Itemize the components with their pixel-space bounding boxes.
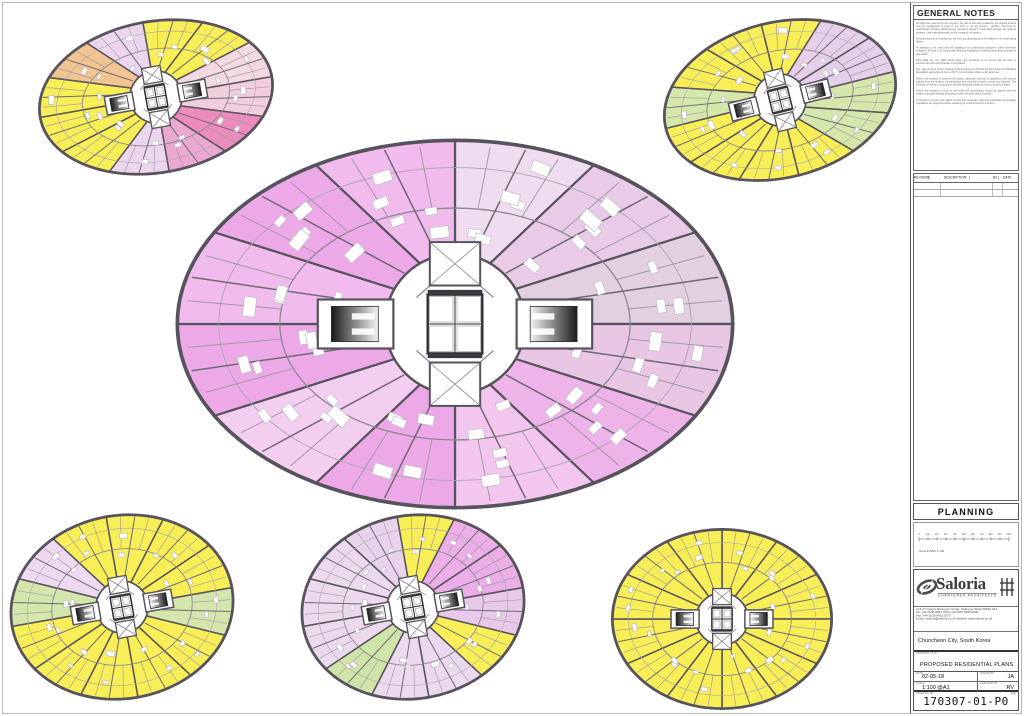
general-note-paragraph: Contractor to ensure that safety checks … <box>916 99 1016 105</box>
planning-stamp: PLANNING <box>913 503 1019 520</box>
svg-text:0: 0 <box>918 532 920 536</box>
checked-by-field: CHECKED BY RV <box>978 682 1018 692</box>
drawing-sheet: GENERAL NOTES All rights are reserved by… <box>0 0 1024 716</box>
drawing-number-label: DRAWING NO <box>916 692 934 695</box>
saloria-swirl-icon <box>916 578 938 596</box>
hanja-seal-icon <box>1000 577 1016 597</box>
general-notes-text: All rights are reserved by the company. … <box>916 22 1016 105</box>
drawing-title-label: DRAWING TITLE <box>916 652 937 655</box>
svg-text:9m: 9m <box>998 532 1003 536</box>
project-location: Chuncheon City, South Korea <box>914 632 1018 652</box>
general-note-paragraph: All rights are reserved by the company. … <box>916 22 1016 34</box>
scale-bar: SCALE BAR 1:100 01m2m3m4m5m6m7m8m9m10m <box>914 523 1019 566</box>
floor-plan-top-right <box>647 0 914 204</box>
title-block-fields: DATE 02-05-18 DRAWN BY JA SCALE 1:100 @A… <box>914 672 1018 692</box>
general-note-paragraph: Where this property is used for the work… <box>916 77 1016 86</box>
svg-text:6m: 6m <box>971 532 976 536</box>
general-note-paragraph: Party Wall etc. Act 1996 would apply any… <box>916 59 1016 65</box>
drawn-by-value: JA <box>1008 674 1014 680</box>
general-note-paragraph: Where this drawing is used for the works… <box>916 90 1016 96</box>
floor-plan-typical-large <box>177 140 733 508</box>
date-value: 02-05-18 <box>922 674 944 680</box>
floor-plan-bottom-centre <box>287 497 540 716</box>
svg-text:7m: 7m <box>980 532 985 536</box>
checked-by-label: CHECKED BY <box>980 682 998 685</box>
scale-value: 1:100 @A1 <box>922 685 950 691</box>
general-notes-box: GENERAL NOTES All rights are reserved by… <box>913 5 1019 171</box>
revision-row-empty <box>914 190 1018 197</box>
drawing-title: PROPOSED RESIDENTIAL PLANS <box>920 662 1013 668</box>
svg-text:3m: 3m <box>944 532 949 536</box>
svg-text:1m: 1m <box>926 532 931 536</box>
by-col: BY <box>993 176 999 180</box>
scale-bar-caption: SCALE BAR 1:100 <box>919 549 945 553</box>
floor-plan-bottom-right <box>612 529 832 709</box>
firm-address: Unit 27 Cygnus Business Centre, Dalmeyer… <box>914 607 1018 632</box>
drawing-number: 170307-01-P0 <box>923 694 1008 709</box>
saloria-wordmark: Saloria <box>936 575 986 592</box>
checked-by-value: RV <box>1006 685 1014 691</box>
general-note-paragraph: The main purpose of this drawing is the … <box>916 68 1016 74</box>
title-block-lower: Saloria CHARTERED ARCHITECTS Unit 27 Cyg… <box>913 569 1019 711</box>
chartered-architects-label: CHARTERED ARCHITECTS <box>938 593 997 597</box>
svg-text:8m: 8m <box>989 532 994 536</box>
floor-plan-bottom-left <box>0 497 248 716</box>
description-col: DESCRIPTION <box>941 176 970 180</box>
general-note-paragraph: All dimensions to be checked on site and… <box>916 37 1016 43</box>
firm-logo-row: Saloria CHARTERED ARCHITECTS <box>914 570 1018 607</box>
revision-col: REVISION <box>914 176 929 180</box>
date-col: DATE <box>1003 176 1011 180</box>
drawn-by-label: DRAWN BY <box>980 672 994 675</box>
drawing-number-box: DRAWING NO REV 170307-01-P0 <box>914 692 1018 709</box>
drawn-by-field: DRAWN BY JA <box>978 672 1018 682</box>
floor-plan-top-left <box>27 2 286 193</box>
address-line: Email: l.saloria@saloria.co.uk website: … <box>916 618 1016 621</box>
revision-label: REV <box>1010 692 1016 695</box>
revision-row-empty <box>914 183 1018 190</box>
scale-field: SCALE 1:100 @A1 <box>914 682 978 692</box>
svg-text:5m: 5m <box>962 532 967 536</box>
svg-text:2m: 2m <box>935 532 940 536</box>
drawing-title-box: DRAWING TITLE PROPOSED RESIDENTIAL PLANS <box>914 652 1018 672</box>
revision-table-header: REVISION DESCRIPTION BY DATE <box>914 174 1018 183</box>
svg-text:4m: 4m <box>953 532 958 536</box>
date-field: DATE 02-05-18 <box>914 672 978 682</box>
general-notes-title: GENERAL NOTES <box>914 6 1018 20</box>
scale-bar-box: SCALE BAR 1:100 01m2m3m4m5m6m7m8m9m10m <box>913 522 1019 567</box>
svg-text:10m: 10m <box>1006 532 1012 536</box>
general-note-paragraph: All attention to be noted that this draw… <box>916 47 1016 56</box>
floor-plans-canvas <box>0 0 1024 716</box>
title-block: GENERAL NOTES All rights are reserved by… <box>910 3 1021 713</box>
revision-table: REVISION DESCRIPTION BY DATE <box>913 173 1019 501</box>
